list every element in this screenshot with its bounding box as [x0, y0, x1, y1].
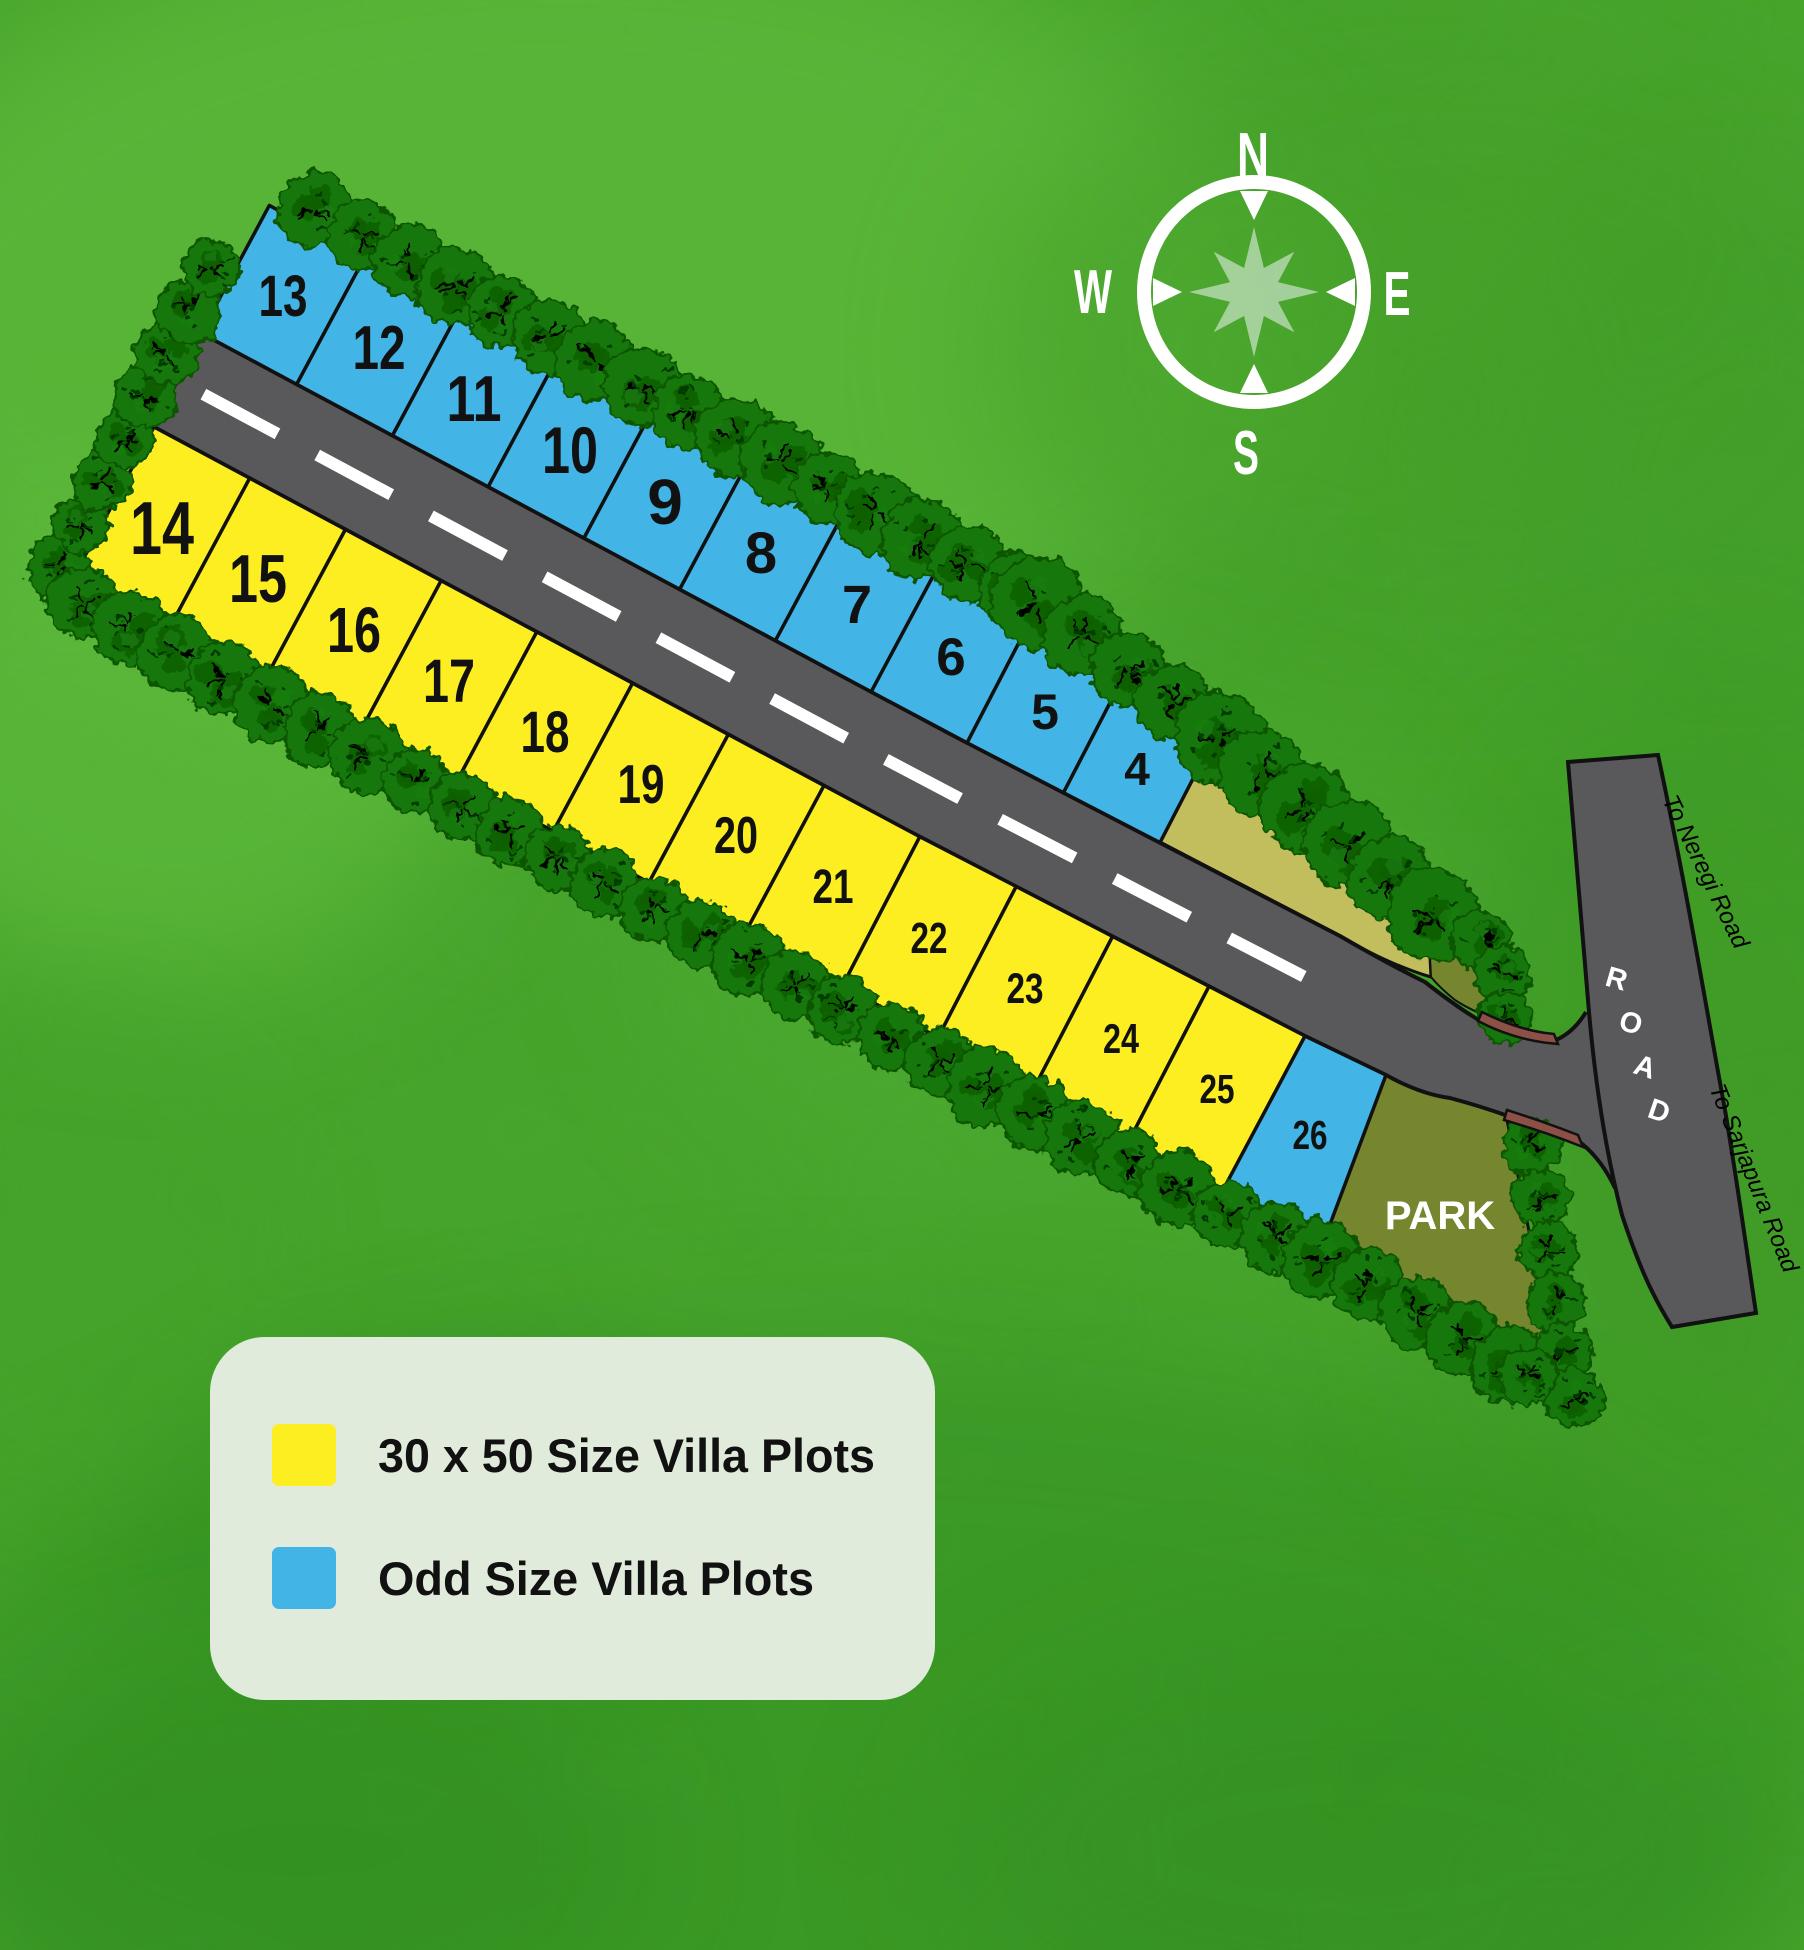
svg-text:19: 19 — [618, 753, 665, 815]
svg-text:21: 21 — [813, 861, 854, 914]
svg-text:10: 10 — [542, 413, 598, 487]
svg-text:13: 13 — [259, 264, 308, 329]
svg-text:W: W — [1074, 258, 1112, 327]
svg-text:4: 4 — [1124, 743, 1150, 795]
svg-text:S: S — [1233, 419, 1259, 488]
svg-text:16: 16 — [327, 594, 381, 666]
svg-text:Odd Size Villa Plots: Odd Size Villa Plots — [378, 1552, 814, 1605]
svg-text:30 x 50 Size Villa Plots: 30 x 50 Size Villa Plots — [378, 1429, 875, 1482]
svg-text:PARK: PARK — [1385, 1194, 1495, 1238]
svg-text:22: 22 — [911, 914, 948, 963]
svg-text:18: 18 — [521, 700, 570, 765]
svg-text:5: 5 — [1031, 684, 1059, 740]
svg-text:E: E — [1384, 260, 1411, 329]
svg-text:15: 15 — [229, 541, 287, 617]
svg-text:11: 11 — [447, 362, 502, 435]
svg-text:24: 24 — [1103, 1015, 1139, 1062]
svg-text:12: 12 — [353, 314, 406, 383]
svg-text:17: 17 — [423, 647, 475, 715]
svg-text:N: N — [1237, 121, 1269, 190]
svg-text:20: 20 — [714, 807, 758, 865]
svg-text:7: 7 — [842, 575, 872, 635]
svg-text:9: 9 — [647, 466, 683, 538]
svg-text:14: 14 — [130, 486, 194, 570]
svg-text:6: 6 — [936, 628, 965, 687]
svg-text:23: 23 — [1007, 965, 1044, 1013]
svg-text:26: 26 — [1293, 1112, 1328, 1158]
svg-text:8: 8 — [745, 521, 777, 586]
svg-text:25: 25 — [1200, 1066, 1235, 1112]
